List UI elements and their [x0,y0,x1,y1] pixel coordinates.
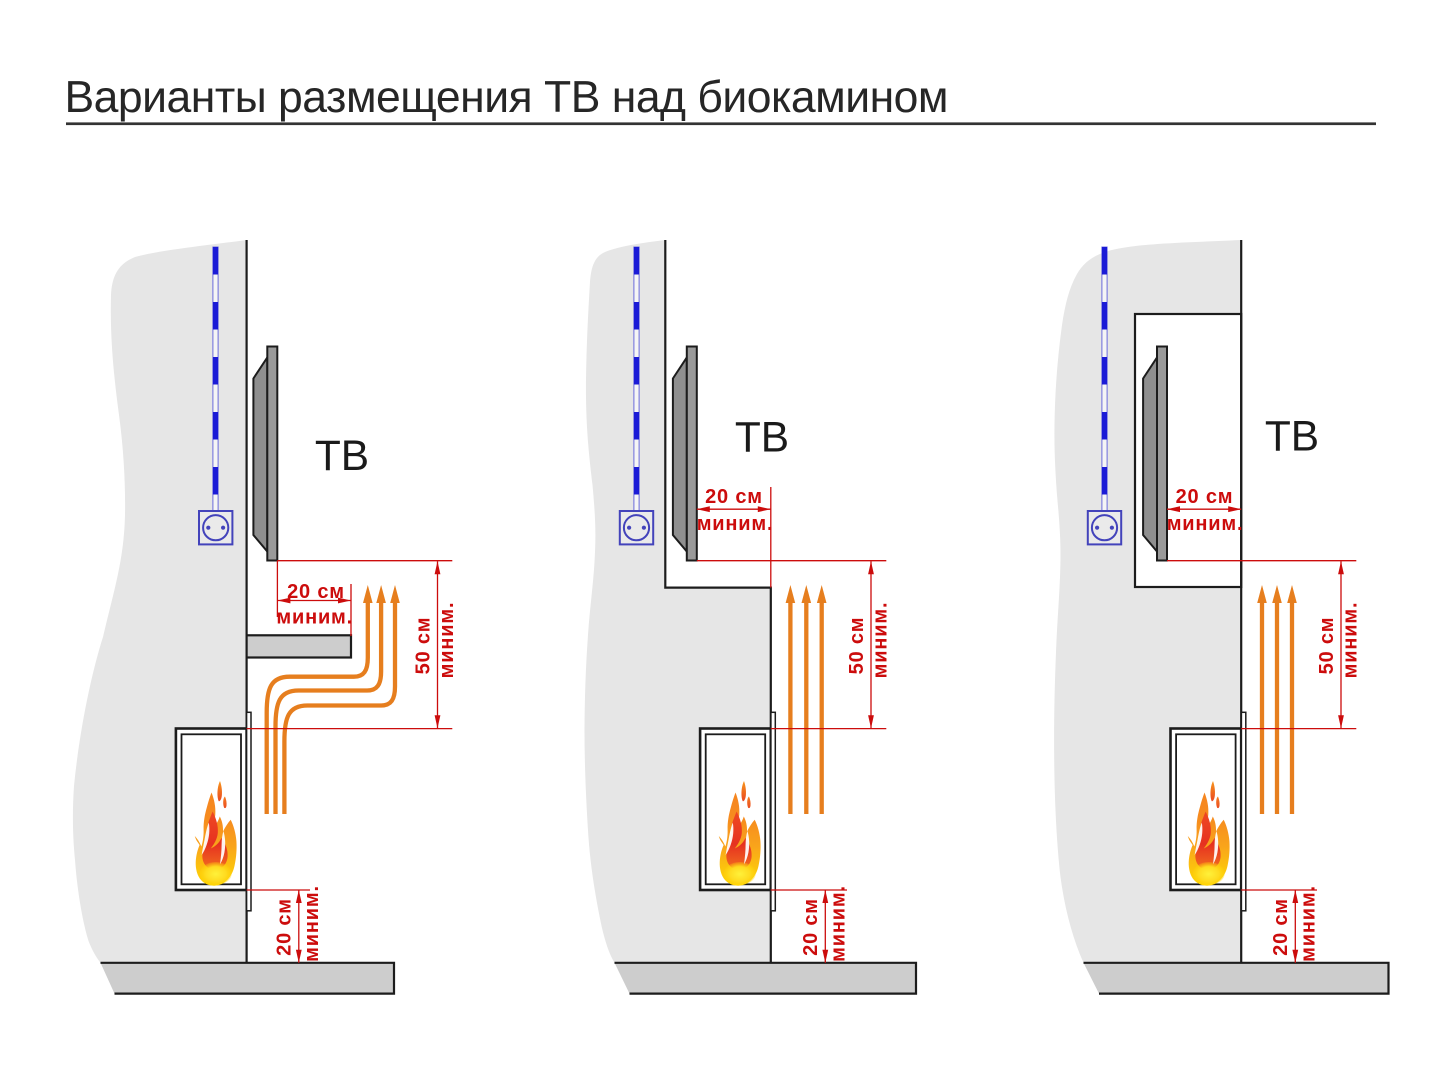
svg-text:50 см: 50 см [846,617,868,675]
svg-text:50 см: 50 см [1316,617,1338,675]
svg-text:20 см: 20 см [1176,486,1234,508]
svg-text:Варианты размещения ТВ над био: Варианты размещения ТВ над биокамином [65,73,949,122]
svg-text:миним.: миним. [697,513,774,535]
svg-text:миним.: миним. [1340,602,1362,679]
svg-text:ТВ: ТВ [315,433,369,480]
svg-text:ТВ: ТВ [735,415,789,462]
svg-text:миним.: миним. [827,885,849,962]
svg-text:миним.: миним. [870,602,892,679]
svg-text:50 см: 50 см [413,617,435,675]
svg-text:миним.: миним. [1167,513,1244,535]
svg-text:20 см: 20 см [705,486,763,508]
svg-text:ТВ: ТВ [1265,414,1319,461]
svg-text:миним.: миним. [301,885,323,962]
svg-text:20 см: 20 см [287,581,345,603]
svg-text:20 см: 20 см [273,898,295,956]
svg-text:20 см: 20 см [1270,898,1292,956]
svg-text:миним.: миним. [276,607,353,629]
svg-text:20 см: 20 см [800,898,822,956]
svg-text:миним.: миним. [1297,885,1319,962]
svg-text:миним.: миним. [436,602,458,679]
